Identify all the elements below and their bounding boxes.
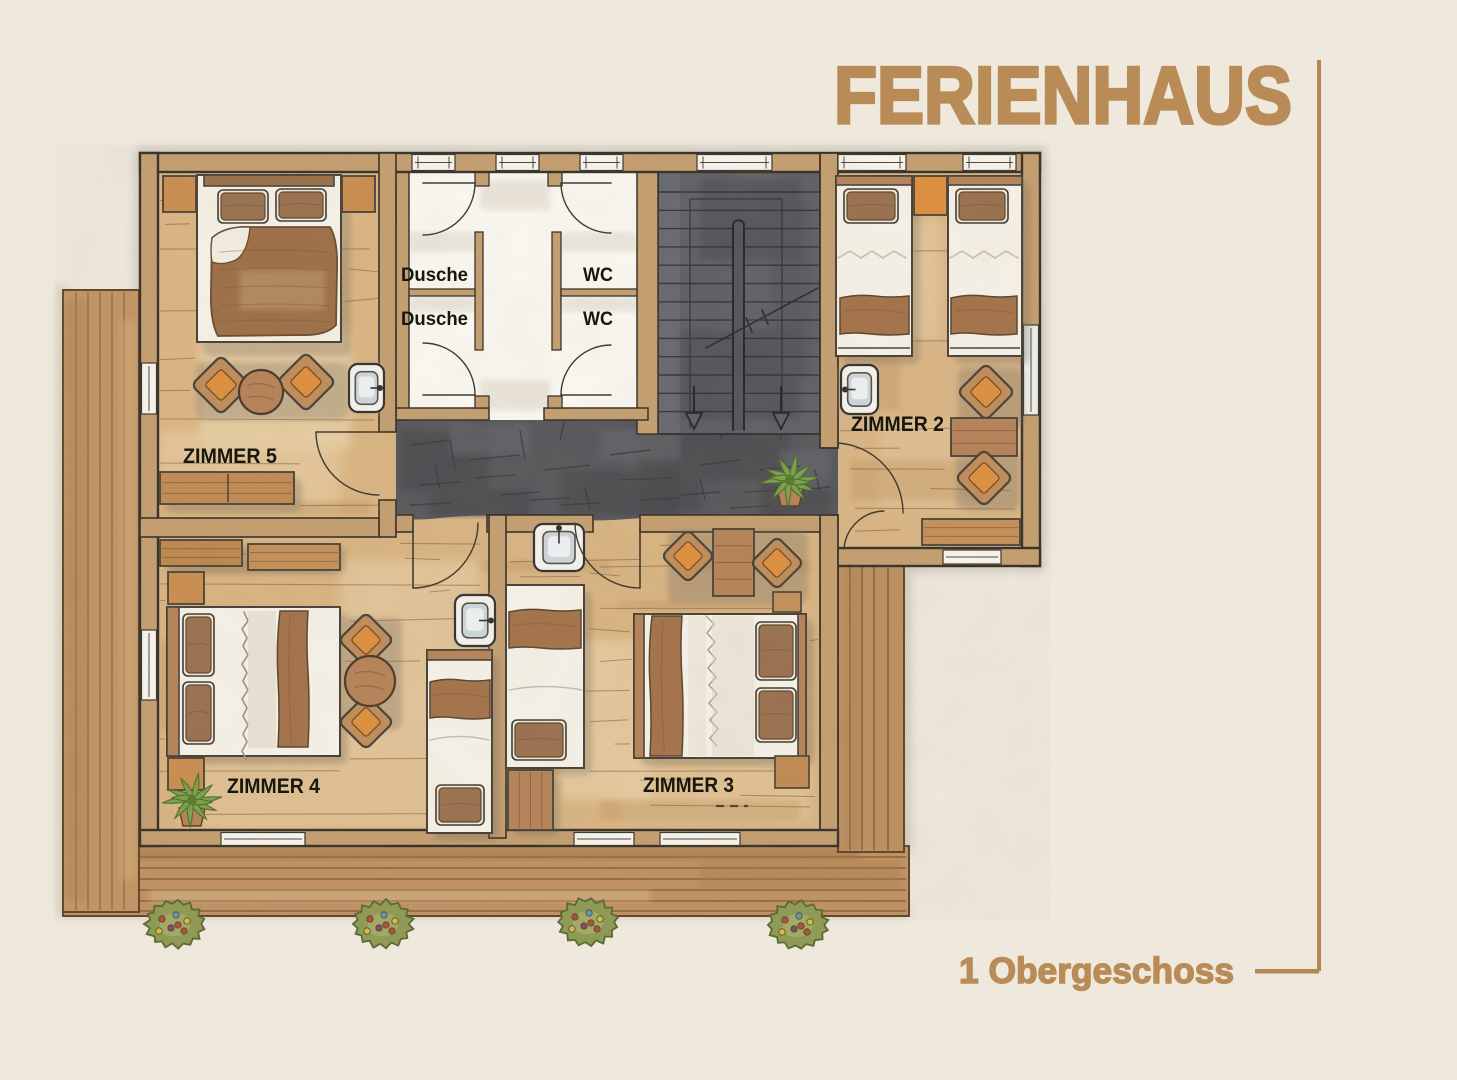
svg-text:ZIMMER 2: ZIMMER 2 [851,413,944,436]
svg-text:ZIMMER 4: ZIMMER 4 [227,775,320,798]
svg-text:FERIENHAUS: FERIENHAUS [834,51,1292,141]
svg-text:1 Obergeschoss: 1 Obergeschoss [959,950,1234,991]
svg-text:WC: WC [583,308,613,330]
svg-text:Dusche: Dusche [401,264,468,286]
svg-text:WC: WC [583,264,613,286]
svg-text:Dusche: Dusche [401,308,468,330]
svg-text:ZIMMER 3: ZIMMER 3 [643,774,734,797]
svg-text:ZIMMER 5: ZIMMER 5 [183,445,277,468]
